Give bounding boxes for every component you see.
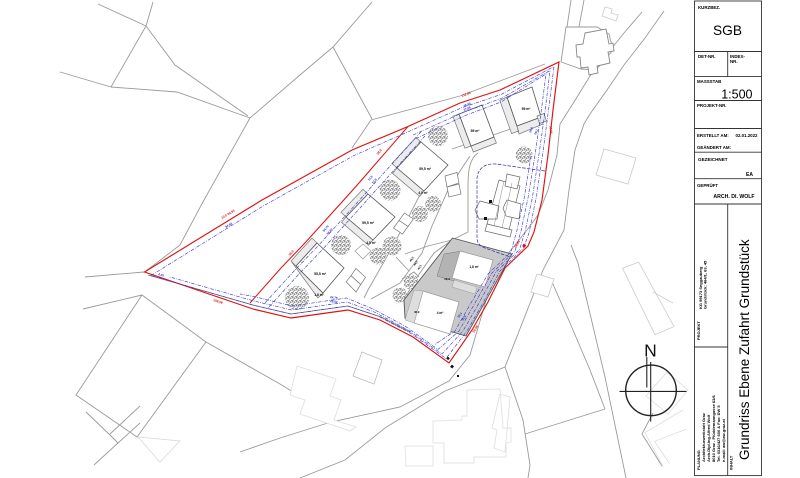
svg-text:1:500: 1:500 (721, 87, 752, 101)
svg-text:1,8 m²: 1,8 m² (314, 293, 323, 297)
svg-text:59 m²: 59 m² (522, 107, 532, 111)
svg-text:59,5 m²: 59,5 m² (362, 221, 375, 225)
svg-text:46,9: 46,9 (414, 310, 420, 314)
svg-text:GEÄNDERT AM:: GEÄNDERT AM: (697, 145, 732, 150)
svg-text:12,3: 12,3 (444, 277, 450, 281)
svg-text:Grundriss Ebene Zufahrt Grunds: Grundriss Ebene Zufahrt Grundstück (737, 239, 752, 460)
svg-text:1,8 m²: 1,8 m² (469, 265, 478, 269)
svg-text:NR.: NR. (730, 59, 738, 64)
svg-text:02.01.2022: 02.01.2022 (736, 133, 759, 138)
svg-text:Grundstück: 464/1, 63, 45: Grundstück: 464/1, 63, 45 (703, 260, 708, 309)
svg-text:59,5 m²: 59,5 m² (419, 167, 432, 171)
svg-text:EA: EA (746, 172, 753, 178)
svg-text:38,96: 38,96 (549, 126, 554, 135)
svg-text:ERSTELLT AM:: ERSTELLT AM: (697, 133, 729, 138)
svg-text:59 m²: 59 m² (471, 129, 481, 133)
svg-text:e-mail: aw@aw-graz.at: e-mail: aw@aw-graz.at (721, 419, 726, 462)
svg-text:SGB: SGB (713, 23, 742, 38)
svg-text:55,5 m²: 55,5 m² (314, 272, 327, 276)
svg-text:4,5 m²: 4,5 m² (418, 191, 427, 195)
svg-text:INHALT: INHALT (729, 455, 734, 470)
svg-text:PROJEKT-NR.: PROJEKT-NR. (697, 103, 727, 108)
svg-text:4 m²: 4 m² (437, 311, 444, 315)
svg-text:GEZEICHNET: GEZEICHNET (698, 157, 728, 162)
svg-text:ARCH. DI. WOLF: ARCH. DI. WOLF (713, 194, 754, 200)
svg-text:GEPRÜFT: GEPRÜFT (697, 183, 718, 188)
svg-text:PROJEKT: PROJEKT (696, 321, 701, 340)
svg-text:DET-NR.: DET-NR. (698, 54, 716, 59)
svg-text:4,5 m²: 4,5 m² (366, 241, 375, 245)
svg-text:MASSSTAB: MASSSTAB (697, 79, 721, 84)
svg-text:KURZBEZ.: KURZBEZ. (698, 5, 720, 10)
svg-text:N: N (644, 341, 657, 361)
